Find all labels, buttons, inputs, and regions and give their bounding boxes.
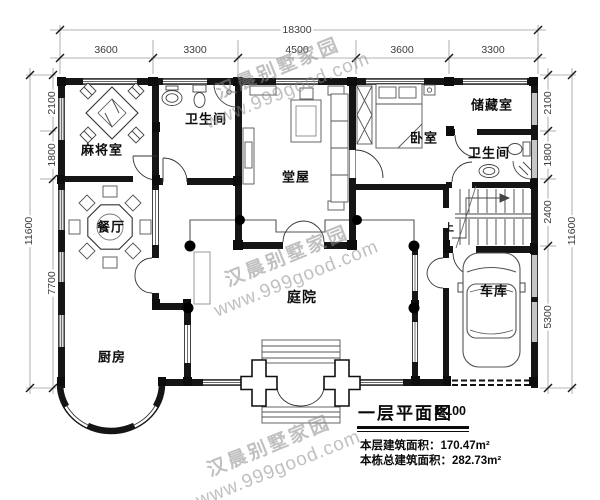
garage-door-dashed	[452, 381, 530, 386]
bathroom-top-fixtures	[162, 84, 237, 108]
veranda-screen	[194, 252, 210, 304]
room-label-garage: 车库	[480, 285, 508, 298]
plan-scale: 1:100	[434, 404, 466, 418]
room-label-kitchen: 厨房	[98, 351, 126, 364]
veranda-line	[190, 220, 414, 246]
dim-top-total: 18300	[280, 25, 313, 36]
dim-top-segment-3: 4500	[283, 45, 310, 56]
room-label-hall: 堂屋	[282, 171, 310, 184]
dim-top-segment-2: 3300	[181, 45, 208, 56]
floor-plan-drawing	[0, 0, 600, 500]
dim-left-total: 11600	[24, 215, 35, 247]
stairs-up-label: 上	[444, 224, 454, 234]
dim-left-segment-3: 7700	[47, 269, 58, 296]
title-underline-thick	[357, 426, 469, 429]
total-area-text: 本栋总建筑面积：282.73m²	[360, 452, 501, 468]
floor-plan-canvas: 18300 3600 3300 4500 3600 3300 11600 210…	[0, 0, 600, 500]
dim-right-segment-4: 5300	[543, 303, 554, 330]
floor-area-text: 本层建筑面积：170.47m²	[360, 437, 490, 453]
dim-top-segment-1: 3600	[92, 45, 119, 56]
dim-right-segment-2: 1800	[543, 141, 554, 168]
staircase	[452, 186, 531, 248]
dim-top-segment-5: 3300	[479, 45, 506, 56]
room-label-bath-right: 卫生间	[468, 147, 510, 160]
title-underline-thin	[357, 431, 469, 432]
dim-left-segment-1: 2100	[47, 89, 58, 116]
dim-top-segment-4: 3600	[388, 45, 415, 56]
dim-right-total: 11600	[567, 215, 578, 247]
dim-right-segment-3: 2400	[543, 198, 554, 225]
room-label-storage: 储藏室	[471, 99, 513, 112]
dim-right-segment-1: 2100	[543, 89, 554, 116]
room-label-bath-top: 卫生间	[185, 113, 227, 126]
room-label-dining: 餐厅	[97, 221, 125, 234]
room-label-mahjong: 麻将室	[81, 144, 123, 157]
hall-furniture	[243, 86, 348, 210]
bottom-wall-features	[203, 379, 403, 386]
dim-left-segment-2: 1800	[47, 141, 58, 168]
car	[458, 253, 525, 367]
kitchen-bay-wall	[60, 384, 162, 431]
bay-windows	[67, 406, 155, 425]
room-label-bedroom: 卧室	[410, 132, 438, 145]
mahjong-table	[80, 83, 144, 143]
room-label-courtyard: 庭院	[287, 290, 317, 304]
